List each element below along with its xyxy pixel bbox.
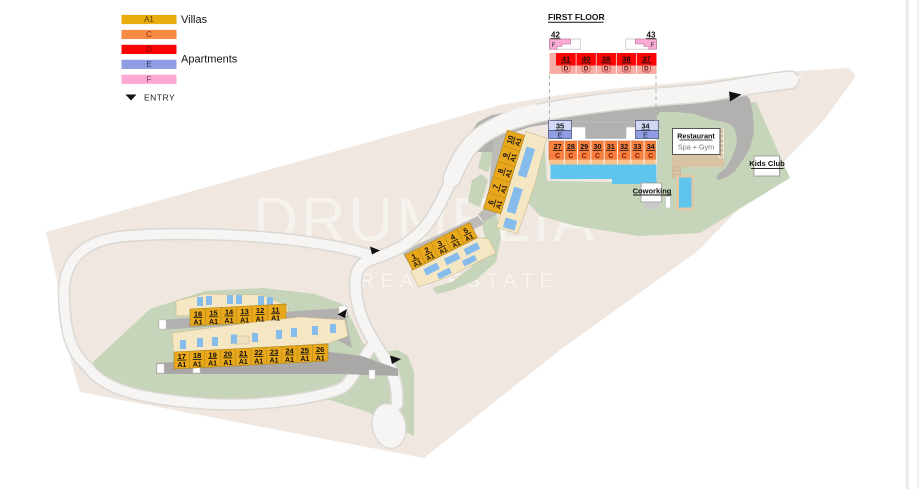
svg-text:22: 22 [255, 348, 263, 357]
svg-text:C: C [555, 153, 560, 160]
svg-text:D: D [644, 66, 649, 73]
svg-text:F: F [147, 75, 152, 84]
svg-text:E: E [558, 133, 563, 140]
svg-text:13: 13 [240, 307, 248, 316]
svg-text:Spa + Gym: Spa + Gym [678, 143, 714, 152]
svg-text:20: 20 [224, 350, 232, 359]
svg-text:37: 37 [642, 55, 650, 64]
svg-text:C: C [146, 30, 152, 39]
svg-text:F: F [651, 42, 655, 49]
svg-text:Villas: Villas [181, 14, 208, 26]
svg-text:A1: A1 [223, 360, 232, 367]
svg-text:A1: A1 [240, 317, 249, 324]
svg-text:Restaurant: Restaurant [677, 132, 715, 141]
svg-text:17: 17 [178, 352, 186, 361]
svg-text:A1: A1 [144, 15, 154, 24]
svg-text:A1: A1 [208, 361, 217, 368]
svg-text:E: E [643, 133, 648, 140]
svg-text:A1: A1 [316, 355, 325, 362]
svg-text:A1: A1 [254, 358, 263, 365]
svg-text:D: D [624, 66, 629, 73]
svg-text:27: 27 [554, 142, 562, 151]
svg-text:19: 19 [208, 350, 216, 359]
svg-text:D: D [604, 66, 609, 73]
svg-text:A1: A1 [193, 361, 202, 368]
svg-text:D: D [564, 66, 569, 73]
svg-text:16: 16 [194, 309, 202, 318]
svg-text:14: 14 [225, 308, 234, 317]
svg-text:C: C [648, 153, 653, 160]
svg-text:11: 11 [272, 305, 280, 314]
svg-text:26: 26 [316, 345, 324, 354]
svg-text:A1: A1 [256, 317, 265, 324]
svg-text:C: C [582, 153, 587, 160]
svg-text:31: 31 [607, 142, 615, 151]
svg-text:38: 38 [622, 55, 630, 64]
svg-text:F: F [552, 42, 556, 49]
svg-text:A1: A1 [225, 318, 234, 325]
svg-text:A1: A1 [194, 320, 203, 327]
svg-text:21: 21 [239, 349, 247, 358]
svg-text:C: C [568, 153, 573, 160]
svg-text:25: 25 [301, 346, 309, 355]
svg-text:C: C [635, 153, 640, 160]
svg-text:A1: A1 [300, 356, 309, 363]
svg-text:A1: A1 [209, 319, 218, 326]
svg-text:Kids Club: Kids Club [749, 159, 785, 168]
svg-text:39: 39 [602, 55, 610, 64]
svg-text:C: C [595, 153, 600, 160]
svg-text:35: 35 [556, 122, 564, 131]
svg-text:23: 23 [270, 347, 278, 356]
svg-text:42: 42 [551, 31, 560, 40]
svg-text:28: 28 [567, 142, 575, 151]
svg-text:40: 40 [582, 55, 590, 64]
svg-text:Coworking: Coworking [633, 187, 672, 196]
svg-text:33: 33 [633, 142, 641, 151]
svg-text:A1: A1 [271, 316, 280, 323]
svg-text:E: E [146, 60, 151, 69]
svg-text:43: 43 [647, 31, 656, 40]
svg-text:ENTRY: ENTRY [144, 93, 175, 103]
svg-text:A1: A1 [270, 358, 279, 365]
svg-text:12: 12 [256, 306, 264, 315]
svg-text:A1: A1 [239, 359, 248, 366]
svg-text:34: 34 [642, 122, 650, 131]
svg-text:29: 29 [580, 142, 588, 151]
svg-text:A1: A1 [285, 357, 294, 364]
svg-text:18: 18 [193, 351, 201, 360]
svg-text:C: C [608, 153, 613, 160]
svg-text:FIRST FLOOR: FIRST FLOOR [548, 12, 605, 22]
svg-text:32: 32 [620, 142, 628, 151]
svg-text:30: 30 [594, 142, 602, 151]
svg-text:A1: A1 [177, 362, 186, 369]
svg-text:Apartments: Apartments [181, 54, 238, 66]
svg-text:D: D [584, 66, 589, 73]
svg-text:34: 34 [647, 142, 655, 151]
svg-text:41: 41 [562, 55, 570, 64]
svg-text:15: 15 [209, 309, 217, 318]
svg-text:D: D [146, 45, 152, 54]
svg-text:24: 24 [285, 347, 294, 356]
svg-text:C: C [622, 153, 627, 160]
